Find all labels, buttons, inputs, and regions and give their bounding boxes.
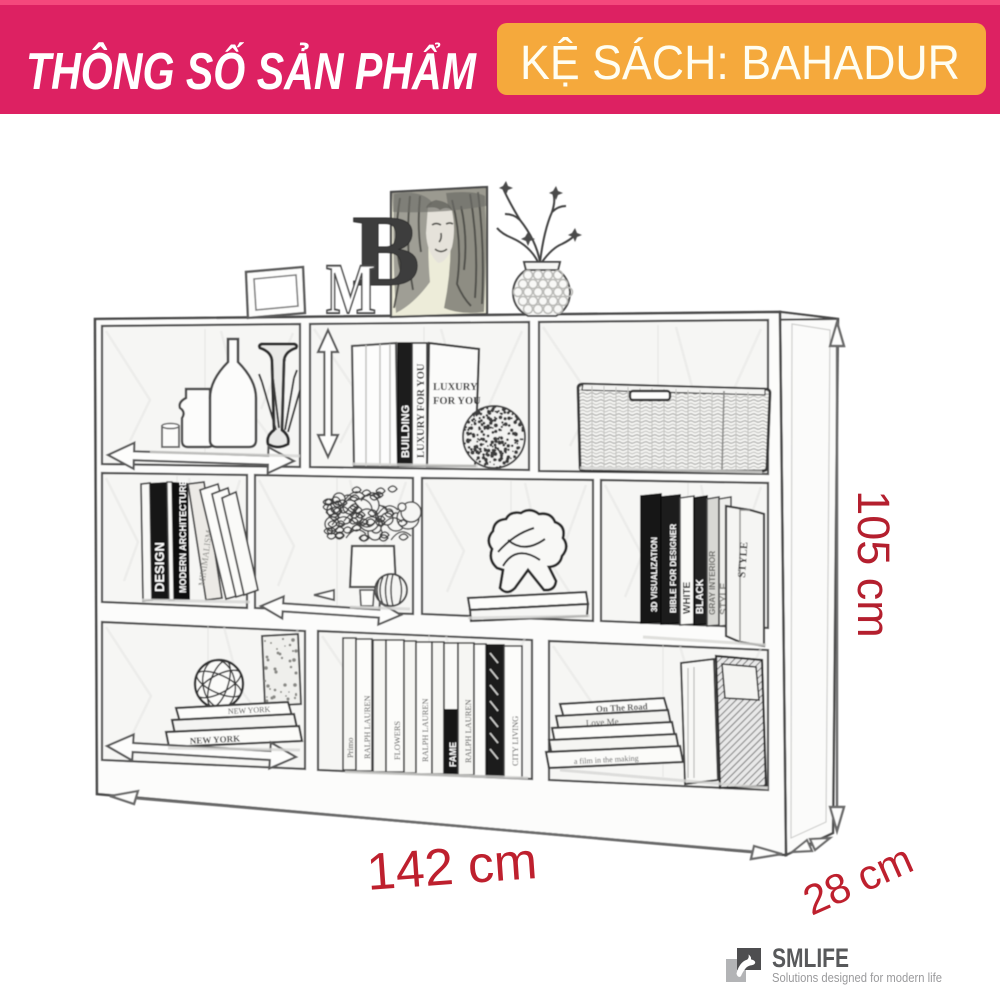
svg-text:THÔNG SỐ SẢN PHẨM: THÔNG SỐ SẢN PHẨM bbox=[26, 42, 477, 101]
svg-text:3D VISUALIZATION: 3D VISUALIZATION bbox=[650, 537, 659, 612]
svg-text:MODERN ARCHITECTURE: MODERN ARCHITECTURE bbox=[178, 480, 188, 593]
svg-text:FAME: FAME bbox=[448, 742, 458, 767]
svg-text:LUXURY: LUXURY bbox=[433, 382, 478, 393]
svg-text:FOR YOU: FOR YOU bbox=[433, 396, 481, 407]
svg-text:BIBLE FOR DESIGNER: BIBLE FOR DESIGNER bbox=[669, 524, 678, 613]
svg-text:DESIGN: DESIGN bbox=[152, 542, 167, 592]
svg-text:RALPH LAUREN: RALPH LAUREN bbox=[464, 699, 473, 763]
svg-text:M: M bbox=[326, 249, 376, 329]
svg-text:105 cm: 105 cm bbox=[848, 490, 899, 638]
svg-text:KỆ SÁCH: BAHADUR: KỆ SÁCH: BAHADUR bbox=[520, 37, 960, 90]
svg-text:RALPH LAUREN: RALPH LAUREN bbox=[363, 695, 372, 759]
svg-text:Primo: Primo bbox=[346, 738, 355, 758]
svg-text:GRAY INTERIOR: GRAY INTERIOR bbox=[708, 551, 717, 615]
svg-text:142 cm: 142 cm bbox=[365, 832, 539, 902]
svg-text:CITY LIVING: CITY LIVING bbox=[511, 716, 520, 766]
svg-text:Solutions designed for modern: Solutions designed for modern life bbox=[772, 970, 942, 985]
svg-text:BLACK: BLACK bbox=[695, 578, 706, 614]
svg-text:BUILDING: BUILDING bbox=[400, 405, 412, 458]
svg-text:STYLE: STYLE bbox=[736, 541, 750, 578]
svg-text:LUXURY FOR YOU: LUXURY FOR YOU bbox=[416, 363, 427, 458]
svg-text:FLOWERS: FLOWERS bbox=[393, 721, 402, 760]
svg-text:WHITE: WHITE bbox=[682, 581, 693, 614]
svg-text:RALPH LAUREN: RALPH LAUREN bbox=[421, 698, 430, 762]
svg-text:SMLIFE: SMLIFE bbox=[772, 943, 849, 973]
